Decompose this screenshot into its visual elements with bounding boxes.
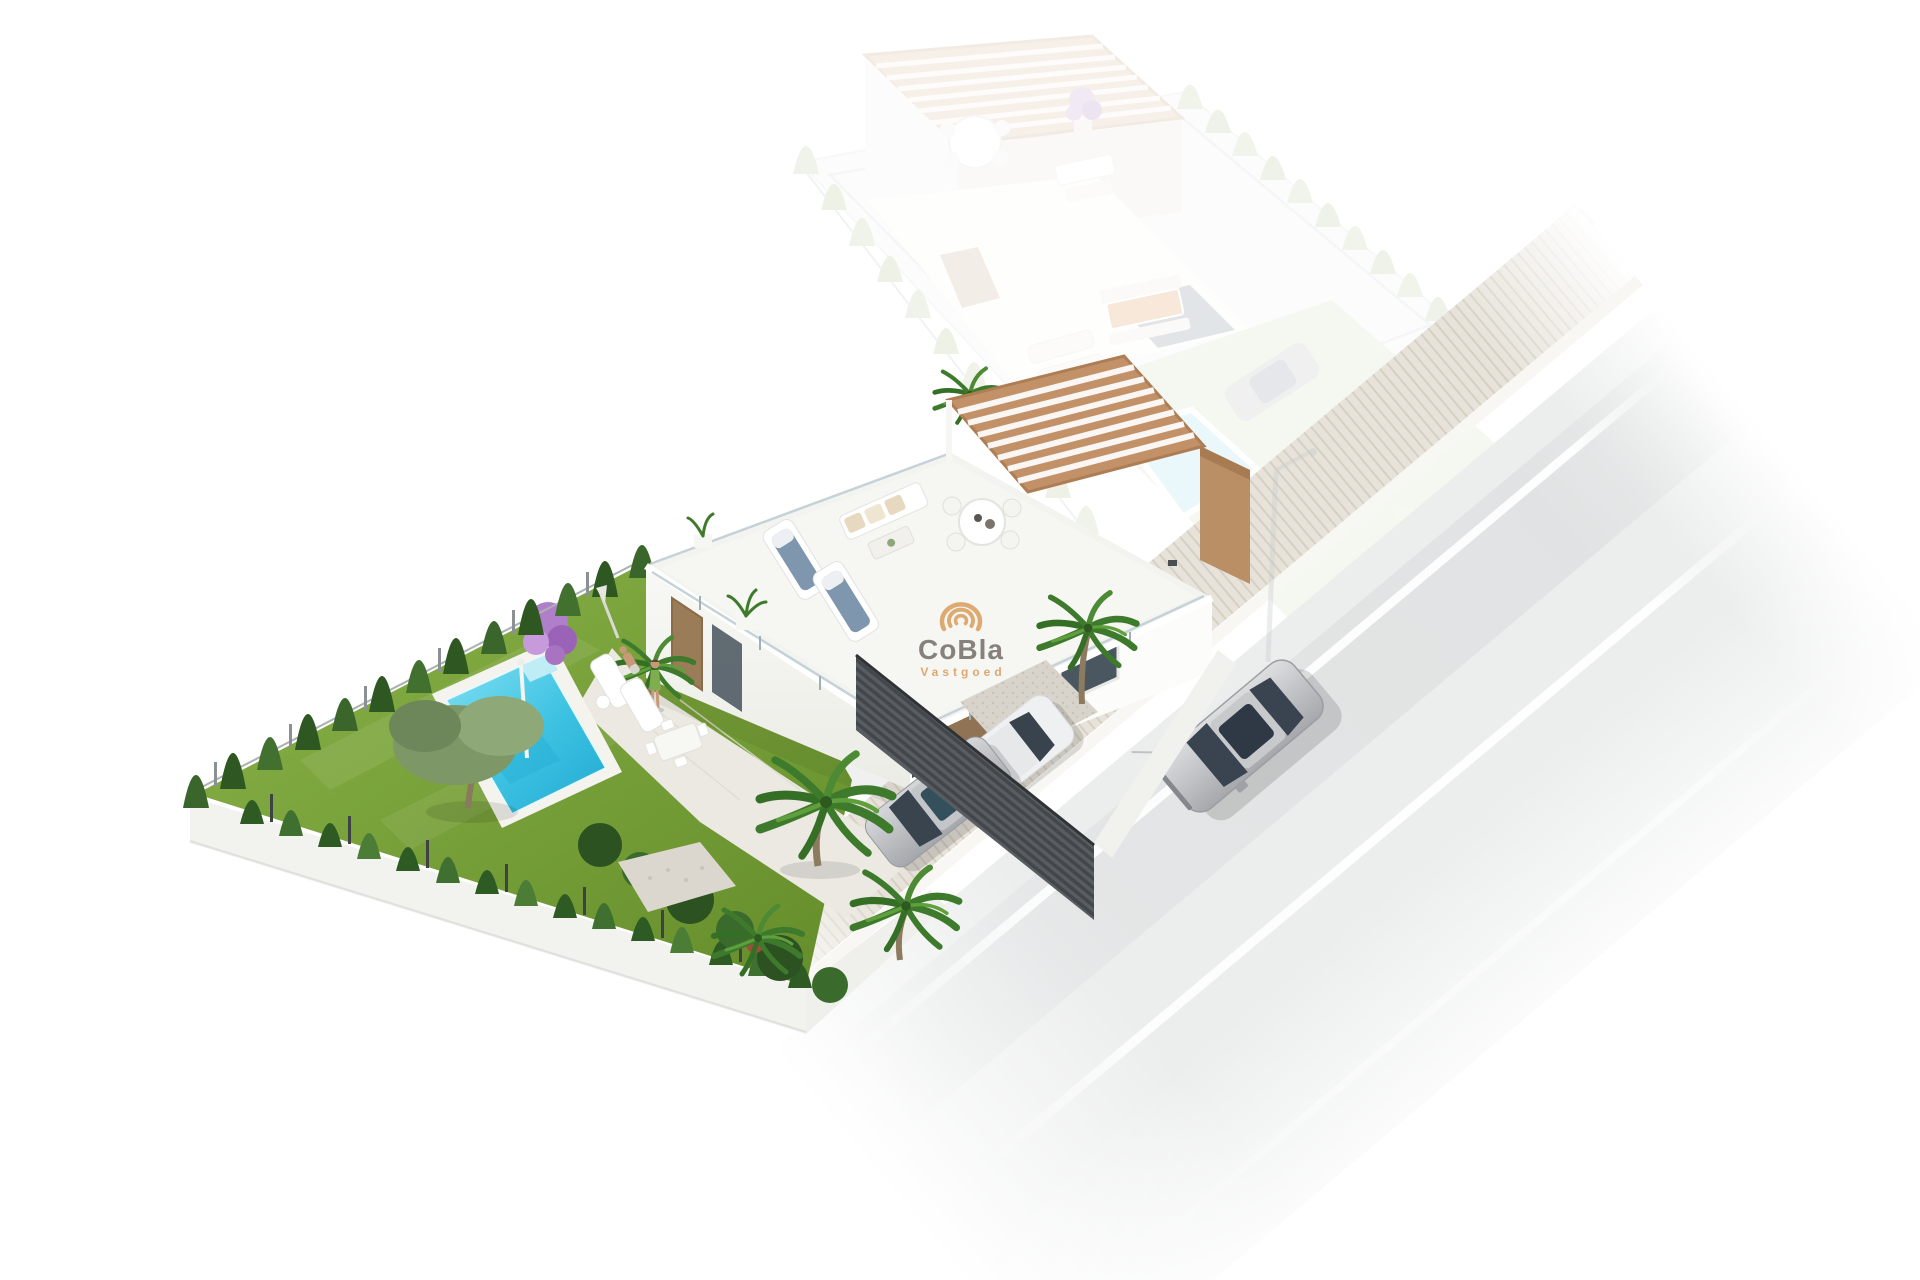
ghost-roof-dining-table bbox=[940, 116, 1010, 168]
watermark-subtitle: Vastgoed bbox=[920, 665, 1005, 679]
render-canvas: CoBla Vastgoed bbox=[0, 0, 1920, 1280]
villa-render: CoBla Vastgoed bbox=[0, 0, 1920, 1280]
wall-sconce-2 bbox=[1168, 560, 1177, 566]
side-table bbox=[596, 695, 610, 709]
watermark-brand: CoBla bbox=[918, 634, 1004, 665]
